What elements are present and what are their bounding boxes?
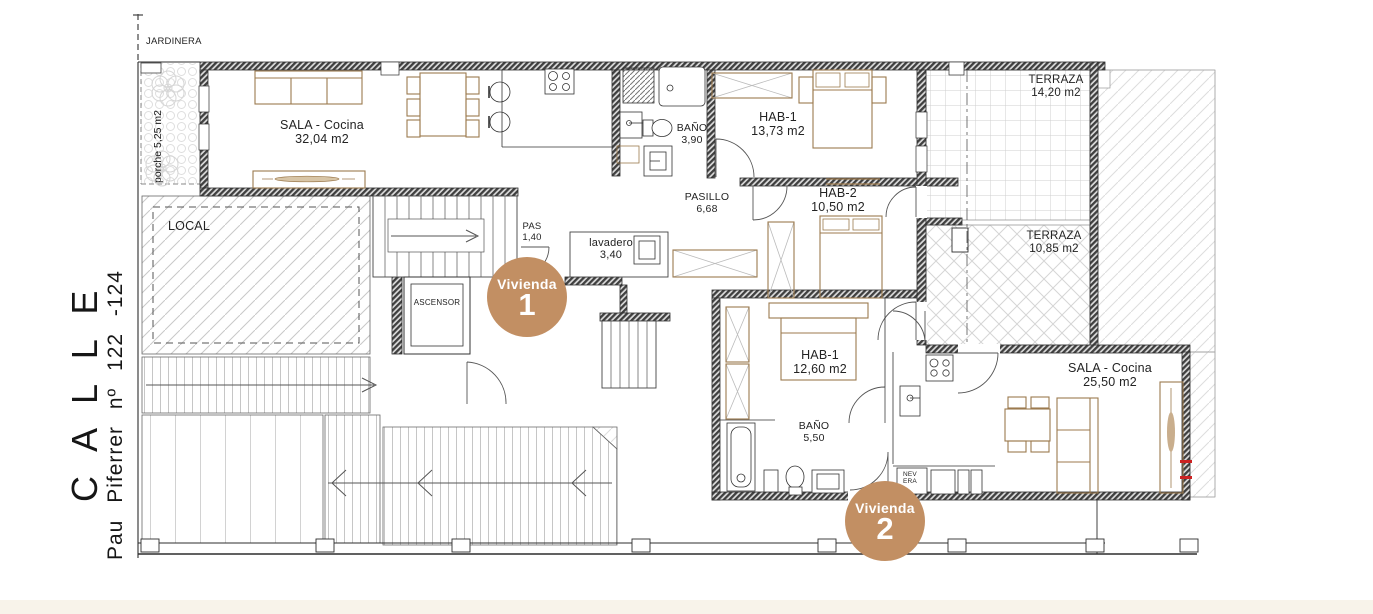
neighbor-building-area (1098, 70, 1215, 497)
local-label: LOCAL (168, 219, 210, 233)
room-label-bano-v1: BAÑO 3,90 (677, 123, 708, 147)
room-label-sala-v2: SALA - Cocina 25,50 m2 (1068, 361, 1152, 389)
elevator-box (404, 277, 470, 354)
fridge-label: NEV ERA (903, 472, 917, 486)
footer-strip (0, 600, 1373, 614)
room-label-pas: PAS 1,40 (522, 222, 541, 243)
room-label-lavadero: lavadero 3,40 (589, 237, 633, 262)
room-label-bano-v2: BAÑO 5,50 (799, 421, 830, 445)
street-name: C A L L E (64, 283, 106, 502)
street-number: Pau Piferrer nº 122 -124 (104, 270, 128, 560)
floor-plan-drawing (0, 0, 1373, 614)
room-label-sala-v1: SALA - Cocina 32,04 m2 (280, 118, 364, 146)
ramp-areas (142, 357, 617, 545)
room-label-hab1-v1: HAB-1 13,73 m2 (751, 110, 805, 138)
secondary-stairs (602, 321, 656, 388)
vivienda-2-badge: Vivienda 2 (845, 481, 925, 561)
jardinera-boundary (133, 14, 143, 62)
vivienda-1-badge: Vivienda 1 (487, 257, 567, 337)
room-label-terraza-lower: TERRAZA 10,85 m2 (1026, 230, 1081, 256)
elevator-label: ASCENSOR (414, 299, 461, 308)
porche-label: porche 5,25 m2 (152, 110, 164, 183)
room-label-pasillo: PASILLO 6,68 (685, 192, 729, 216)
room-label-hab2-v1: HAB-2 10,50 m2 (811, 186, 865, 214)
room-label-hab1-v2: HAB-1 12,60 m2 (793, 348, 847, 376)
room-label-terraza-upper: TERRAZA 14,20 m2 (1028, 74, 1083, 100)
porch-area (138, 62, 200, 186)
floor-plan-page: JARDINERA porche 5,25 m2 C A L L E Pau P… (0, 0, 1373, 614)
jardinera-label: JARDINERA (146, 37, 202, 48)
kitchen1 (489, 69, 612, 147)
washing-machine (634, 236, 660, 264)
